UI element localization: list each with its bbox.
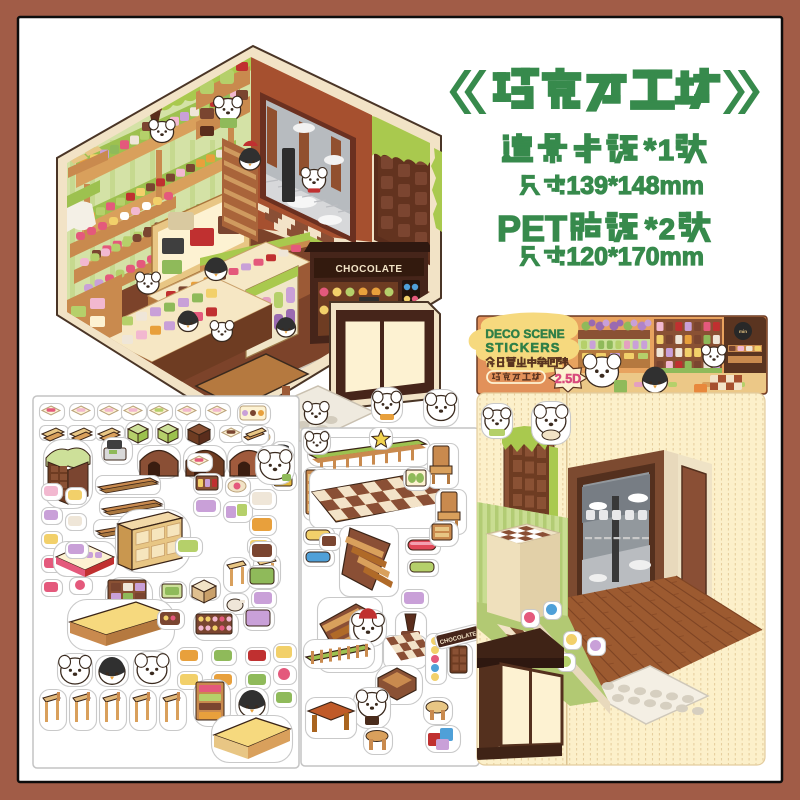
svg-text:2.5D: 2.5D <box>555 372 581 386</box>
svg-text::120*170mm: :120*170mm <box>558 243 704 271</box>
svg-text:1: 1 <box>658 135 674 167</box>
svg-text:*: * <box>645 211 658 247</box>
svg-text:2: 2 <box>659 214 675 246</box>
svg-text:*: * <box>644 132 657 168</box>
svg-text:STICKERS: STICKERS <box>485 340 560 355</box>
svg-text:PET: PET <box>497 208 567 249</box>
svg-text:CHOCOLATE: CHOCOLATE <box>335 264 402 275</box>
svg-text::139*148mm: :139*148mm <box>558 172 704 200</box>
svg-text:DECO SCENE: DECO SCENE <box>485 327 564 341</box>
svg-text:min: min <box>739 329 747 334</box>
